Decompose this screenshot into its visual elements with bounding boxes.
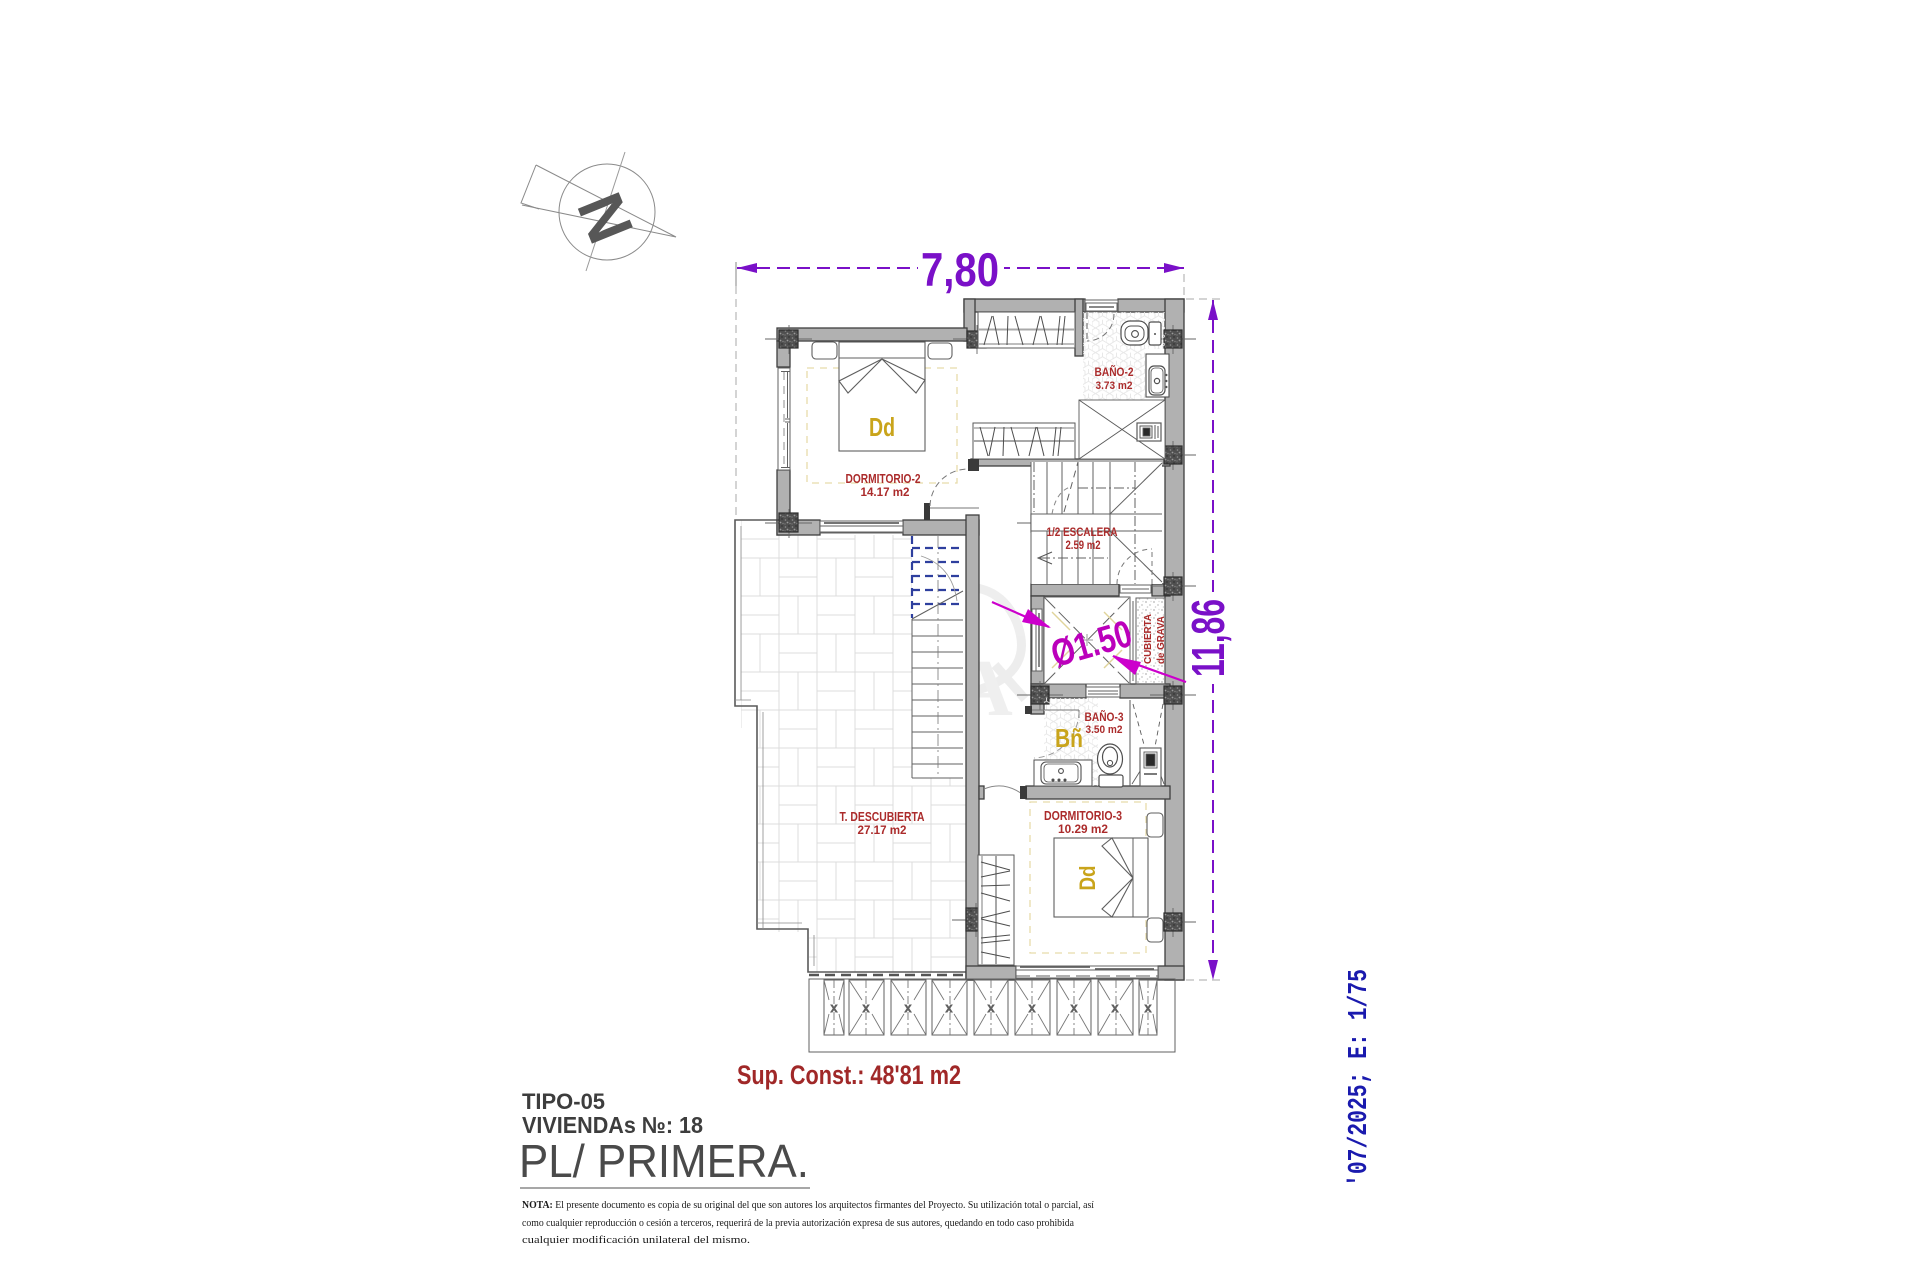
svg-text:x: x	[1029, 1000, 1036, 1015]
svg-text:BAÑO-3: BAÑO-3	[1085, 711, 1124, 724]
svg-text:DORMITORIO-2: DORMITORIO-2	[846, 472, 921, 486]
svg-text:14.17 m2: 14.17 m2	[861, 485, 910, 499]
svg-text:1/2 ESCALERA: 1/2 ESCALERA	[1047, 525, 1118, 539]
svg-text:PL/ PRIMERA.: PL/ PRIMERA.	[519, 1135, 809, 1187]
svg-text:como cualquier reproducción o: como cualquier reproducción o cesión a t…	[522, 1217, 1074, 1229]
svg-text:3.73 m2: 3.73 m2	[1096, 380, 1133, 392]
svg-text:11,86: 11,86	[1182, 599, 1234, 677]
svg-text:2.59 m2: 2.59 m2	[1066, 540, 1101, 552]
svg-text:x: x	[1112, 1000, 1119, 1015]
svg-text:x: x	[988, 1000, 995, 1015]
svg-text:x: x	[831, 1000, 838, 1015]
svg-text:BAÑO-2: BAÑO-2	[1095, 366, 1134, 379]
svg-text:'07/2025; E: 1/75: '07/2025; E: 1/75	[1345, 969, 1375, 1187]
svg-text:DORMITORIO-3: DORMITORIO-3	[1044, 809, 1122, 823]
svg-text:x: x	[863, 1000, 870, 1015]
svg-text:x: x	[946, 1000, 953, 1015]
svg-text:27.17 m2: 27.17 m2	[858, 823, 907, 837]
svg-text:Dd: Dd	[1075, 866, 1100, 891]
svg-text:7,80: 7,80	[921, 243, 999, 296]
svg-text:x: x	[905, 1000, 912, 1015]
svg-text:3.50 m2: 3.50 m2	[1086, 724, 1123, 736]
svg-text:Sup. Const.: 48'81 m2: Sup. Const.: 48'81 m2	[737, 1060, 961, 1090]
svg-text:x: x	[1071, 1000, 1078, 1015]
svg-text:NOTA: El presente documento es: NOTA: El presente documento es copia de …	[522, 1199, 1094, 1211]
svg-text:Bñ: Bñ	[1055, 723, 1083, 753]
svg-text:x: x	[1145, 1000, 1152, 1015]
svg-text:T. DESCUBIERTA: T. DESCUBIERTA	[840, 810, 925, 824]
svg-text:de GRAVA: de GRAVA	[1155, 616, 1167, 664]
svg-text:10.29 m2: 10.29 m2	[1058, 822, 1108, 836]
svg-text:Dd: Dd	[869, 412, 895, 442]
svg-text:CUBIERTA: CUBIERTA	[1142, 614, 1154, 664]
svg-text:TIPO-05: TIPO-05	[522, 1089, 605, 1114]
svg-text:cualquier modificación unilate: cualquier modificación unilateral del mi…	[522, 1234, 750, 1246]
